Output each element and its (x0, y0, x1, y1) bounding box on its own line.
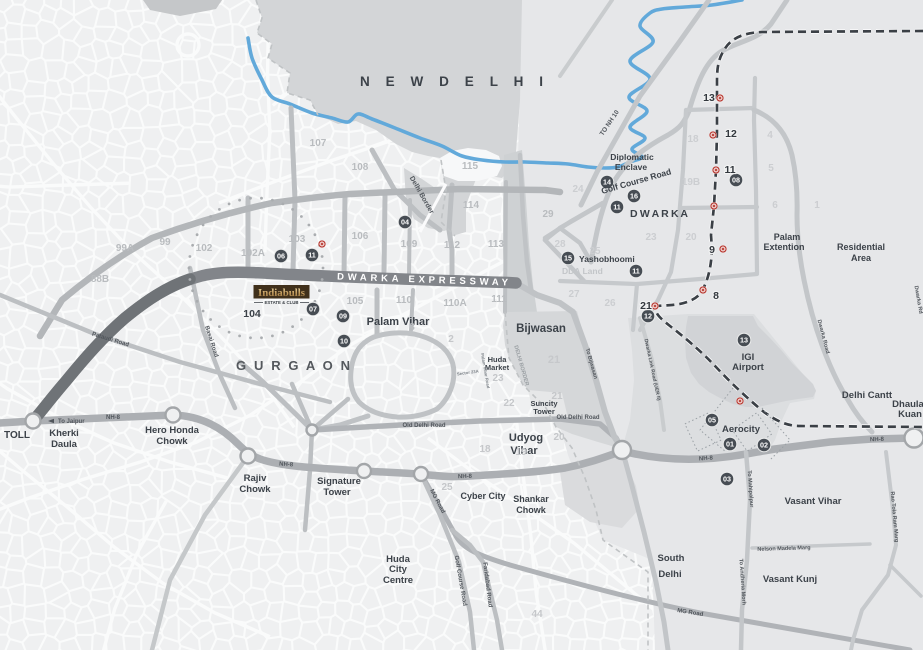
svg-text:15: 15 (564, 254, 572, 263)
svg-text:07: 07 (309, 305, 317, 314)
svg-text:NH-8: NH-8 (699, 455, 714, 462)
svg-text:05: 05 (708, 416, 716, 425)
svg-text:Kherki: Kherki (49, 428, 79, 439)
svg-text:South: South (658, 553, 685, 564)
svg-text:Chowk: Chowk (516, 505, 546, 515)
svg-text:DDA Land: DDA Land (562, 266, 603, 276)
svg-text:102: 102 (196, 243, 213, 254)
svg-text:Delhi: Delhi (658, 569, 681, 580)
svg-text:NH-8: NH-8 (279, 462, 294, 469)
svg-text:Airport: Airport (732, 362, 765, 373)
svg-text:110A: 110A (443, 298, 466, 309)
svg-text:10: 10 (340, 337, 348, 346)
svg-text:Area: Area (851, 253, 872, 263)
svg-text:9: 9 (709, 244, 715, 256)
svg-text:114: 114 (463, 200, 480, 211)
svg-text:99: 99 (159, 237, 171, 248)
svg-text:88B: 88B (91, 274, 109, 285)
svg-text:107: 107 (310, 138, 327, 149)
svg-text:Enclave: Enclave (615, 162, 647, 172)
svg-text:Daula: Daula (51, 439, 78, 450)
svg-text:11: 11 (613, 203, 621, 212)
svg-text:Hero Honda: Hero Honda (145, 425, 200, 436)
svg-text:27: 27 (568, 289, 580, 300)
svg-text:Signature: Signature (317, 476, 361, 487)
svg-text:111: 111 (491, 294, 507, 305)
svg-text:Yashobhoomi: Yashobhoomi (579, 254, 635, 264)
svg-text:NH-8: NH-8 (106, 415, 121, 421)
svg-text:Palam Vihar: Palam Vihar (367, 316, 430, 328)
svg-text:99A: 99A (116, 243, 134, 254)
svg-text:1: 1 (814, 200, 820, 211)
svg-text:TOLL: TOLL (4, 430, 30, 441)
svg-text:Tower: Tower (323, 487, 351, 498)
svg-text:20: 20 (553, 432, 565, 443)
svg-text:11: 11 (724, 164, 735, 176)
svg-text:Delhi Cantt: Delhi Cantt (842, 390, 893, 401)
svg-text:Centre: Centre (383, 575, 413, 586)
svg-text:21: 21 (548, 354, 560, 366)
svg-text:11: 11 (632, 267, 640, 276)
svg-text:04: 04 (401, 218, 409, 227)
svg-text:12: 12 (644, 312, 652, 321)
svg-text:23: 23 (492, 373, 504, 384)
svg-text:44: 44 (531, 609, 543, 620)
svg-text:Vasant Vihar: Vasant Vihar (785, 496, 842, 507)
svg-text:8: 8 (713, 290, 719, 302)
svg-text:18: 18 (479, 444, 491, 455)
svg-text:Cyber City: Cyber City (460, 491, 505, 501)
svg-text:21: 21 (551, 391, 563, 402)
svg-text:Tower: Tower (533, 407, 555, 416)
svg-text:03: 03 (723, 475, 731, 484)
svg-text:D W A R K A: D W A R K A (630, 208, 688, 220)
svg-text:Kuan: Kuan (898, 409, 922, 420)
svg-text:109: 109 (401, 239, 418, 250)
svg-text:6: 6 (772, 200, 778, 211)
svg-text:To Jaipur: To Jaipur (58, 419, 85, 425)
svg-text:112: 112 (444, 240, 461, 251)
svg-text:19: 19 (515, 447, 527, 458)
svg-text:Palam: Palam (774, 232, 801, 242)
svg-text:Diplomatic: Diplomatic (610, 152, 654, 162)
svg-text:Old Delhi Road: Old Delhi Road (402, 423, 445, 429)
svg-text:Chowk: Chowk (156, 436, 188, 447)
svg-text:Shankar: Shankar (513, 494, 549, 504)
svg-text:25: 25 (441, 482, 453, 493)
svg-text:103: 103 (289, 234, 306, 245)
svg-text:Chowk: Chowk (239, 484, 271, 495)
svg-text:Old Delhi Road: Old Delhi Road (556, 415, 599, 421)
svg-text:20: 20 (685, 232, 697, 243)
svg-text:24: 24 (572, 184, 584, 195)
svg-text:Indiabulls: Indiabulls (258, 288, 305, 299)
svg-text:13: 13 (703, 92, 715, 104)
svg-text:102A: 102A (241, 248, 265, 259)
svg-text:29: 29 (542, 209, 554, 220)
svg-text:5: 5 (768, 163, 774, 174)
svg-text:19B: 19B (682, 177, 700, 188)
svg-text:01: 01 (726, 440, 734, 449)
svg-text:23: 23 (645, 232, 657, 243)
svg-text:08: 08 (732, 176, 740, 185)
svg-text:108: 108 (352, 162, 369, 173)
svg-text:115: 115 (462, 161, 479, 172)
svg-text:11: 11 (308, 251, 316, 260)
svg-text:Bijwasan: Bijwasan (516, 323, 566, 335)
svg-text:16: 16 (630, 192, 638, 201)
svg-text:4: 4 (767, 130, 773, 141)
svg-text:ESTATE & CLUB: ESTATE & CLUB (265, 300, 299, 305)
svg-text:Extention: Extention (763, 242, 804, 252)
svg-text:Vasant Kunj: Vasant Kunj (763, 574, 817, 585)
svg-text:09: 09 (339, 312, 347, 321)
svg-text:City: City (389, 564, 408, 575)
svg-text:NH-8: NH-8 (870, 437, 885, 444)
svg-text:12: 12 (725, 128, 737, 140)
svg-text:110: 110 (396, 295, 413, 306)
svg-text:22: 22 (503, 398, 515, 409)
svg-text:113: 113 (488, 239, 505, 250)
svg-text:13: 13 (740, 336, 748, 345)
svg-text:21: 21 (640, 300, 652, 312)
svg-text:Rajiv: Rajiv (244, 473, 267, 484)
svg-text:Udyog: Udyog (509, 432, 543, 444)
svg-text:Residential: Residential (837, 242, 885, 252)
svg-text:28: 28 (554, 239, 566, 250)
svg-text:104: 104 (243, 308, 261, 320)
svg-text:26: 26 (604, 298, 616, 309)
svg-text:NH-8: NH-8 (458, 474, 473, 481)
svg-text:06: 06 (277, 252, 285, 261)
svg-text:Aerocity: Aerocity (722, 424, 761, 435)
svg-text:106: 106 (352, 231, 369, 242)
svg-text:02: 02 (760, 441, 768, 450)
svg-text:2: 2 (448, 334, 454, 345)
svg-text:25: 25 (589, 246, 601, 257)
svg-text:18: 18 (687, 134, 699, 145)
svg-text:105: 105 (347, 296, 364, 307)
svg-text:3: 3 (409, 322, 415, 333)
